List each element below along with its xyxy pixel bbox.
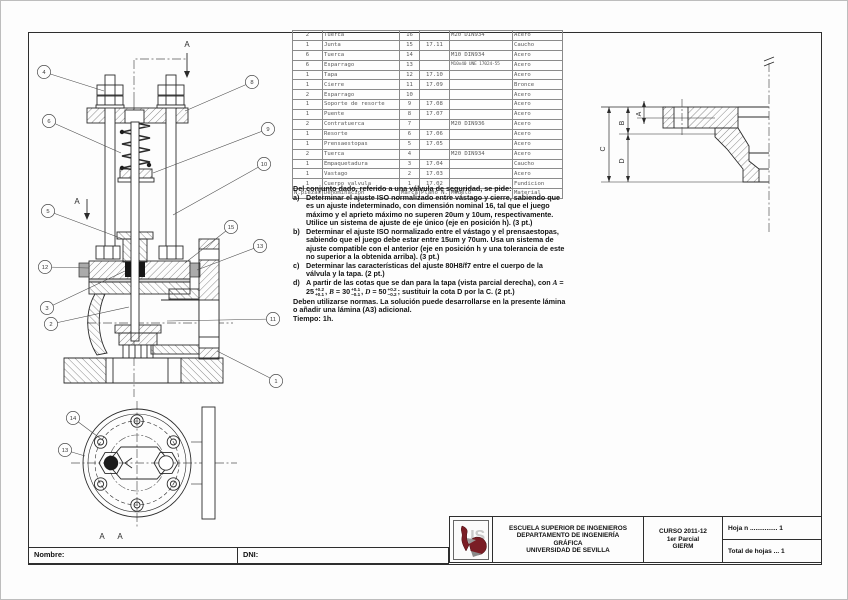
tapa-partial-view — [601, 57, 774, 233]
parts-table-row: 2Tuerca4M20 DIN934Acero — [293, 149, 563, 159]
sheet-count: Hoja n ............... 1 Total de hojas … — [723, 517, 821, 562]
parts-table-cell: 17.08 — [419, 100, 449, 110]
parts-table-cell: 2 — [293, 31, 323, 41]
parts-table-cell: Tuerca — [322, 50, 399, 60]
dni-field[interactable]: DNI: — [238, 547, 449, 564]
parts-table-cell: Tuerca — [322, 149, 399, 159]
parts-table-cell — [419, 60, 449, 70]
parts-table-row: 1Cierre1117.09Bronce — [293, 80, 563, 90]
school-logo-emblem: US — [453, 520, 489, 560]
parts-table-cell: 13 — [399, 60, 419, 70]
parts-table-cell — [419, 50, 449, 60]
parts-table-cell: Caucho — [512, 40, 562, 50]
parts-table-cell: 12 — [399, 70, 419, 80]
parts-table-row: 1Empaquetadura317.04Caucho — [293, 159, 563, 169]
svg-text:12: 12 — [42, 265, 48, 271]
top-nuts — [96, 85, 185, 108]
svg-text:10: 10 — [261, 162, 267, 168]
dim-letter-D: D — [619, 158, 626, 163]
parts-table-cell: Acero — [512, 120, 562, 130]
parts-table-cell: M20 DIN936 — [449, 120, 512, 130]
parts-table-cell — [449, 139, 512, 149]
parts-table-cell — [419, 31, 449, 41]
svg-text:2: 2 — [49, 322, 52, 328]
parts-table-cell: Soporte de resorte — [322, 100, 399, 110]
parts-table-cell — [449, 110, 512, 120]
svg-text:13: 13 — [257, 244, 263, 250]
parts-table-row: 1Puente817.07Acero — [293, 110, 563, 120]
parts-table-cell: 1 — [293, 129, 323, 139]
parts-table-cell: M10 DIN934 — [449, 50, 512, 60]
identification-row: Nombre: DNI: — [28, 547, 449, 564]
parts-table-cell: Acero — [512, 50, 562, 60]
parts-table-cell: M20 DIN934 — [449, 31, 512, 41]
parts-table-cell — [419, 149, 449, 159]
parts-table-cell: Acero — [512, 100, 562, 110]
parts-table-cell: Acero — [512, 129, 562, 139]
section-arrow-left — [84, 199, 90, 220]
parts-table-cell: Cierre — [322, 80, 399, 90]
parts-table-cell: Acero — [512, 60, 562, 70]
dim-letter-C: C — [600, 146, 607, 151]
parts-table-cell — [449, 90, 512, 100]
parts-table-cell: 1 — [293, 139, 323, 149]
svg-text:15: 15 — [228, 225, 234, 231]
parts-table-cell: Caucho — [512, 159, 562, 169]
parts-table-cell: 17.05 — [419, 139, 449, 149]
dim-letter-B: B — [619, 120, 626, 125]
nombre-field[interactable]: Nombre: — [28, 547, 238, 564]
parts-table: 2Tuerca16M20 DIN934Acero1Junta1517.11Cau… — [292, 30, 563, 199]
parts-table-cell: Esparrago — [322, 90, 399, 100]
parts-table-row: 2Contratuerca7M20 DIN936Acero — [293, 120, 563, 130]
parts-table-cell: Acero — [512, 139, 562, 149]
parts-table-cell: Acero — [512, 31, 562, 41]
title-block: US ESCUELA SUPERIOR DE INGENIEROS DEPART… — [449, 516, 822, 563]
parts-table-cell: 4 — [399, 149, 419, 159]
sheet-number: Hoja n ............... 1 — [723, 517, 821, 540]
section-letter: A — [74, 197, 80, 206]
parts-table-cell: 2 — [293, 120, 323, 130]
parts-table-row: 1Vastago217.03Acero — [293, 169, 563, 179]
section-letter: A — [184, 40, 190, 49]
parts-table-cell: Resorte — [322, 129, 399, 139]
parts-table-cell: 17.10 — [419, 70, 449, 80]
parts-table-cell: Acero — [512, 90, 562, 100]
parts-table-cell: Acero — [512, 70, 562, 80]
section-letter: A — [99, 532, 105, 541]
parts-table-cell: 1 — [293, 80, 323, 90]
svg-text:8: 8 — [250, 80, 253, 86]
dim-letter-A: A — [636, 111, 643, 116]
question-a: a) Determinar el ajuste ISO normalizado … — [293, 194, 567, 228]
parts-table-cell — [449, 40, 512, 50]
parts-table-cell: 2 — [293, 149, 323, 159]
parts-table-cell: Junta — [322, 40, 399, 50]
course-info: CURSO 2011-12 1er Parcial GIERM — [644, 517, 723, 562]
svg-text:1: 1 — [274, 379, 277, 385]
parts-table-cell: 14 — [399, 50, 419, 60]
parts-table-cell: 6 — [399, 129, 419, 139]
parts-table-cell: 8 — [399, 110, 419, 120]
section-arrow-top — [184, 53, 190, 78]
questions-block: Del conjunto dado, referido a una válvul… — [293, 185, 567, 323]
svg-text:13: 13 — [62, 448, 68, 454]
question-b: b) Determinar el ajuste ISO normalizado … — [293, 228, 567, 262]
parts-table-cell: Bronce — [512, 80, 562, 90]
questions-time: Tiempo: 1h. — [293, 315, 567, 324]
svg-text:3: 3 — [45, 306, 48, 312]
parts-table-cell: 5 — [399, 139, 419, 149]
total-sheets: Total de hojas ... 1 — [723, 540, 821, 562]
parts-table-row: 1Tapa1217.10Acero — [293, 70, 563, 80]
parts-table-cell: 9 — [399, 100, 419, 110]
parts-table-cell: 1 — [293, 100, 323, 110]
parts-table-cell: 3 — [399, 159, 419, 169]
svg-text:11: 11 — [270, 317, 276, 323]
parts-table-cell: Puente — [322, 110, 399, 120]
parts-table-row: 6Tuerca14M10 DIN934Acero — [293, 50, 563, 60]
parts-table-row: 1Junta1517.11Caucho — [293, 40, 563, 50]
parts-table-cell — [449, 80, 512, 90]
svg-text:14: 14 — [70, 416, 77, 422]
parts-table-cell — [419, 90, 449, 100]
parts-table-row: 1Prensaestopas517.05Acero — [293, 139, 563, 149]
parts-table-cell: Empaquetadura — [322, 159, 399, 169]
parts-table-cell: 17.07 — [419, 110, 449, 120]
parts-table-cell: 2 — [399, 169, 419, 179]
parts-table-cell: Prensaestopas — [322, 139, 399, 149]
dimension-letters: CBDA — [600, 111, 643, 163]
svg-text:9: 9 — [266, 127, 269, 133]
parts-table-cell: Tuerca — [322, 31, 399, 41]
parts-table-cell — [449, 129, 512, 139]
questions-closing: Deben utilizarse normas. La solución pue… — [293, 298, 567, 315]
parts-table-cell: 1 — [293, 159, 323, 169]
parts-table-row: 2Tuerca16M20 DIN934Acero — [293, 31, 563, 41]
parts-table-cell: Acero — [512, 149, 562, 159]
parts-table-cell: Contratuerca — [322, 120, 399, 130]
parts-table-cell: 17.06 — [419, 129, 449, 139]
parts-table-cell: 17.09 — [419, 80, 449, 90]
svg-text:5: 5 — [46, 209, 49, 215]
parts-table-cell: Esparrago — [322, 60, 399, 70]
section-letter: A — [117, 532, 123, 541]
school-logo: US — [450, 517, 493, 562]
parts-table-cell: 16 — [399, 31, 419, 41]
parts-table-cell — [449, 70, 512, 80]
parts-table-cell: 1 — [293, 110, 323, 120]
parts-table-body: 2Tuerca16M20 DIN934Acero1Junta1517.11Cau… — [293, 31, 563, 199]
parts-table-cell: 1 — [293, 70, 323, 80]
svg-text:6: 6 — [47, 119, 50, 125]
question-c: c) Determinar las características del aj… — [293, 262, 567, 279]
parts-table-cell — [449, 159, 512, 169]
parts-table-cell: Tapa — [322, 70, 399, 80]
school-name: ESCUELA SUPERIOR DE INGENIEROS DEPARTAME… — [493, 517, 644, 562]
parts-table-cell: Acero — [512, 110, 562, 120]
parts-table-cell: M10x40 UNE 17024-55 — [449, 60, 512, 70]
question-d: d) A partir de las cotas que se dan para… — [293, 279, 567, 298]
threaded-union — [123, 345, 153, 358]
parts-table-cell: 17.11 — [419, 40, 449, 50]
parts-table-cell: 1 — [293, 169, 323, 179]
parts-table-cell: 10 — [399, 90, 419, 100]
parts-table-cell — [449, 169, 512, 179]
parts-table-row: 1Resorte617.06Acero — [293, 129, 563, 139]
parts-table-row: 6Esparrago13M10x40 UNE 17024-55Acero — [293, 60, 563, 70]
parts-table-cell: 2 — [293, 90, 323, 100]
bottom-view — [71, 401, 237, 529]
parts-table-row: 1Soporte de resorte917.08Acero — [293, 100, 563, 110]
parts-table-cell — [419, 120, 449, 130]
parts-table-cell: M20 DIN934 — [449, 149, 512, 159]
parts-table-cell: 7 — [399, 120, 419, 130]
front-section-view — [64, 53, 233, 397]
parts-table-row: 2Esparrago10Acero — [293, 90, 563, 100]
parts-table-cell: 11 — [399, 80, 419, 90]
parts-table-cell: Acero — [512, 169, 562, 179]
parts-table-cell — [449, 100, 512, 110]
drawing-sheet: 4651232891015131111413 CBDA AAAA 2Tuerca… — [0, 0, 848, 600]
parts-table-cell: Vastago — [322, 169, 399, 179]
parts-table-cell: 17.03 — [419, 169, 449, 179]
parts-table-cell: 6 — [293, 60, 323, 70]
parts-table-cell: 17.04 — [419, 159, 449, 169]
parts-table-cell: 6 — [293, 50, 323, 60]
parts-table-cell: 1 — [293, 40, 323, 50]
parts-table-cell: 15 — [399, 40, 419, 50]
